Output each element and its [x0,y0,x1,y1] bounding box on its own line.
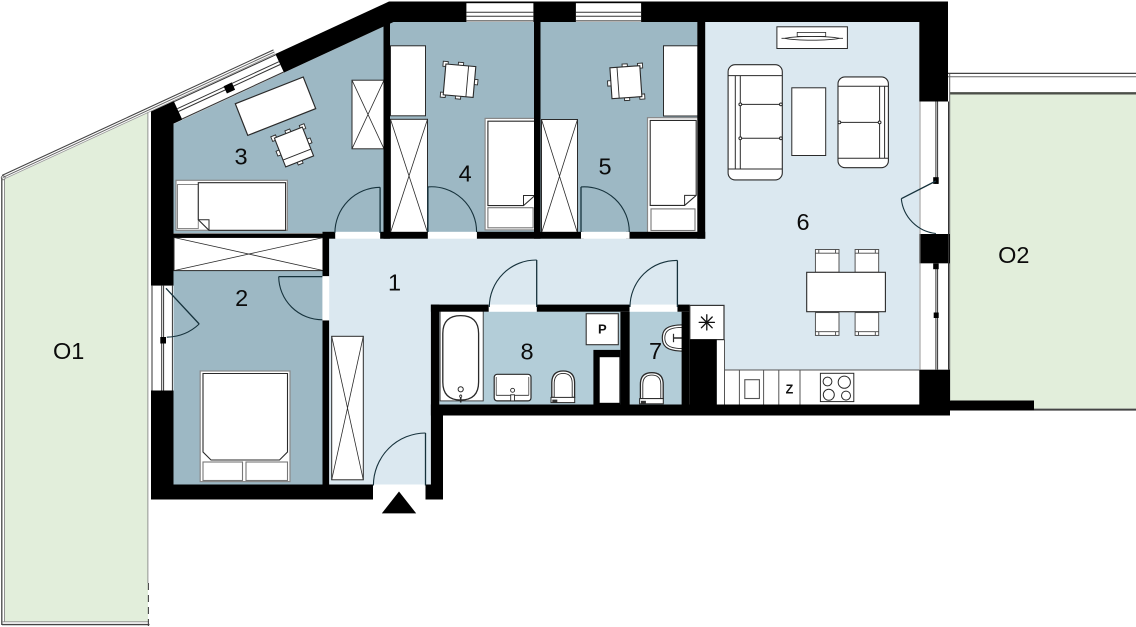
svg-text:O1: O1 [53,338,84,364]
svg-text:5: 5 [598,154,611,180]
svg-text:4: 4 [459,160,472,186]
svg-text:O2: O2 [998,242,1029,268]
svg-text:Z: Z [786,383,794,397]
svg-text:6: 6 [796,209,809,235]
svg-text:7: 7 [649,338,662,364]
svg-text:2: 2 [235,285,248,311]
svg-text:8: 8 [520,339,533,365]
svg-text:1: 1 [388,270,401,296]
svg-text:P: P [598,322,607,337]
svg-text:3: 3 [234,144,247,170]
